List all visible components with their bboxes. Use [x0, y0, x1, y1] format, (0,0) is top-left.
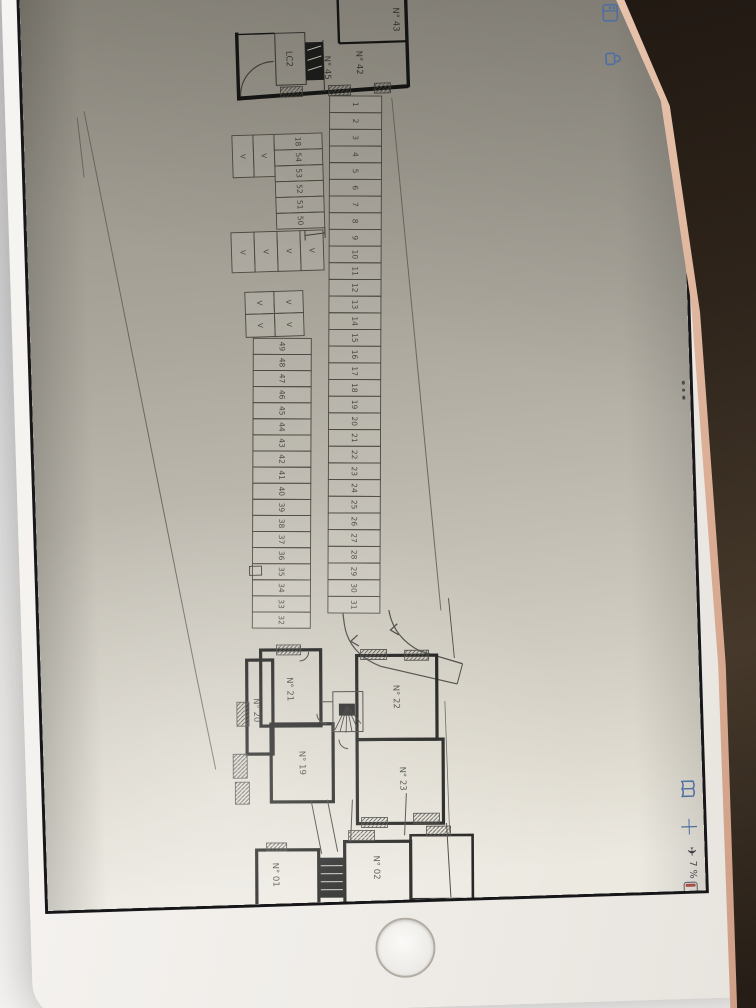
stall-number: 5 [351, 169, 360, 174]
visitor-stall-label: V [238, 154, 246, 159]
visitor-stall-label: V [255, 300, 263, 305]
stall-number: 40 [277, 487, 286, 497]
stall-number: 31 [349, 600, 358, 610]
parking-strip-main: 1234567891011121314151617181920212223242… [328, 96, 382, 613]
lock-icon[interactable] [603, 48, 624, 69]
stall-number: 43 [277, 438, 286, 448]
stall-number: 15 [350, 333, 359, 343]
room-21-label: N° 21 [284, 677, 295, 701]
stall-number: 20 [350, 416, 359, 426]
stall-number: 2 [351, 119, 360, 124]
stall-number: 9 [351, 235, 360, 240]
stall-number: 13 [350, 300, 359, 310]
room-01-label: N° 01 [270, 863, 281, 887]
room-22-label: N° 22 [390, 685, 401, 709]
thumbnails-icon[interactable] [600, 2, 621, 23]
parking-strip-lower: 494847464544434241403938373635343332 [252, 338, 311, 628]
stall-number: 25 [350, 500, 359, 510]
stall-number: 18 [350, 383, 359, 393]
battery-fill [686, 884, 696, 887]
stall-number: 23 [350, 467, 359, 477]
visitor-stall-label: V [284, 300, 292, 305]
stall-number: 50 [296, 216, 305, 226]
stall-number: 26 [350, 517, 359, 527]
basement-stairwell [319, 858, 345, 898]
visitor-stall-label: V [259, 153, 267, 158]
stall-number: 12 [350, 283, 359, 293]
stall-number: 52 [295, 184, 304, 194]
stall-number: 21 [350, 433, 359, 443]
stall-number: 32 [277, 615, 286, 625]
stall-number: 54 [294, 152, 303, 162]
stall-number: 44 [277, 422, 286, 432]
stall-number: 41 [277, 470, 286, 480]
stall-number: 33 [277, 599, 286, 609]
visitor-stall-label: V [284, 248, 292, 253]
stall-number: 39 [277, 503, 286, 513]
stall-number: 47 [278, 374, 287, 384]
floor-plan-svg: 1234567891011121314151617181920212223242… [19, 0, 706, 911]
stall-number: 28 [349, 550, 358, 560]
room-45-label: N° 45 [321, 56, 332, 80]
visitor-stall-label: V [262, 249, 270, 254]
parking-cluster-50s: 185453525150 [274, 133, 325, 229]
stall-number: 35 [277, 567, 286, 577]
stall-number: 18 [293, 137, 302, 147]
stall-number: 48 [278, 358, 287, 368]
stall-number: 46 [277, 390, 286, 400]
stall-number: 10 [350, 250, 359, 260]
visitor-stall-label: V [239, 250, 247, 255]
visitor-stall-label: V [307, 248, 315, 253]
airplane-mode-icon: ✈ [684, 846, 698, 856]
stall-number: 53 [294, 168, 303, 178]
room-23-label: N° 23 [397, 766, 408, 790]
stall-number: 45 [277, 406, 286, 416]
room-42-label: N° 42 [353, 51, 364, 75]
battery-percent-label: 7 % [687, 860, 699, 878]
stall-number: 49 [278, 342, 287, 352]
stall-number: 3 [351, 135, 360, 140]
stall-number: 38 [277, 519, 286, 529]
window-hatches-lower [233, 644, 440, 828]
lower-building [233, 644, 450, 854]
stall-number: 42 [277, 454, 286, 464]
tablet-screen: 7:55 Mercredi 11 décembre ✈ 7 % + [19, 0, 706, 911]
battery-icon [684, 881, 699, 902]
room-lc2-label: LC2 [283, 51, 294, 67]
stall-number: 34 [277, 583, 286, 593]
tablet-device: 7:55 Mercredi 11 décembre ✈ 7 % + [0, 0, 756, 1008]
stall-number: 16 [350, 350, 359, 360]
room-20-label: N° 20 [251, 698, 262, 722]
stall-number: 30 [349, 583, 358, 593]
stall-number: 24 [350, 483, 359, 493]
room-19-label: N° 19 [296, 751, 307, 775]
stall-number: 29 [349, 567, 358, 577]
photo-of-tablet: { "status": { "time_date": "7:55 Mercred… [0, 0, 756, 1008]
book-icon[interactable] [677, 778, 698, 799]
stall-number: 51 [295, 200, 304, 210]
basement-rooms [256, 793, 473, 910]
stall-number: 14 [350, 316, 359, 326]
room-02-label: N° 02 [371, 855, 382, 879]
ramp-arrow [390, 624, 398, 635]
home-button[interactable] [375, 917, 437, 979]
stall-number: 8 [351, 219, 360, 224]
add-icon[interactable]: + [679, 816, 700, 838]
stall-number: 19 [350, 400, 359, 410]
stall-number: 22 [350, 450, 359, 460]
stall-number: 27 [349, 533, 358, 543]
stall-number: 36 [277, 551, 286, 561]
stall-number: 7 [351, 202, 360, 207]
stall-number: 4 [351, 152, 360, 157]
visitor-stall-label: V [285, 322, 293, 327]
stall-number: 17 [350, 366, 359, 376]
room-43-label: N° 43 [390, 7, 401, 31]
upper-building [235, 0, 409, 101]
more-menu-icon[interactable] [681, 381, 685, 400]
visitor-stall-label: V [256, 323, 264, 328]
stall-number: 37 [277, 535, 286, 545]
stall-number: 6 [351, 185, 360, 190]
stall-number: 1 [351, 102, 360, 107]
stall-number: 11 [350, 266, 359, 276]
